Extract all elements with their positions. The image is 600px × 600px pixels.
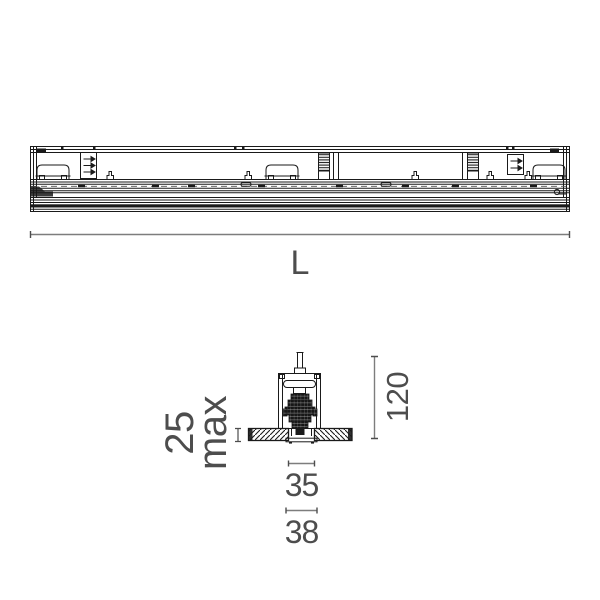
terminal-block-left — [319, 153, 330, 180]
driver-housing — [334, 153, 463, 180]
length-dim-label: L — [291, 244, 310, 282]
cutout-width-dimension: 35 — [285, 461, 319, 504]
endcap-block-right — [550, 149, 559, 154]
side-elevation-view — [31, 147, 570, 212]
trim-bezel — [286, 438, 317, 443]
suspension-clip-middle — [265, 165, 300, 180]
height-dim-label: 120 — [380, 372, 415, 422]
height-dimension: 120 — [371, 357, 415, 439]
top-channel-lines — [31, 150, 569, 153]
suspension-clip-right — [532, 165, 567, 180]
diffuser-dark-band — [31, 204, 569, 207]
cutout-dim-label: 35 — [285, 467, 319, 503]
recess-throat — [289, 428, 315, 438]
terminal-block-right — [468, 153, 479, 180]
suspension-stem — [295, 353, 306, 374]
length-dimension: L — [31, 231, 570, 282]
connector-box-left — [81, 153, 97, 179]
recess-thickness-tick — [235, 429, 241, 442]
endcap-block-left — [37, 149, 46, 154]
suspension-clip-left — [36, 165, 71, 180]
ceiling-panel-left — [249, 429, 289, 441]
recess-depth-dimension: 25 max — [158, 395, 241, 470]
connector-box-right — [508, 155, 524, 175]
ceiling-panel-right — [315, 429, 353, 441]
overall-width-dimension: 38 — [285, 508, 319, 551]
diffuser-frame-lines — [31, 198, 569, 210]
technical-drawing-canvas: L — [0, 0, 600, 600]
internal-wiring-block — [283, 394, 317, 428]
recess-dim-suffix: max — [191, 395, 235, 470]
drawing-page: L — [0, 0, 600, 600]
optic-lines — [31, 191, 569, 193]
cross-section-view — [249, 353, 353, 444]
overall-dim-label: 38 — [285, 514, 319, 550]
